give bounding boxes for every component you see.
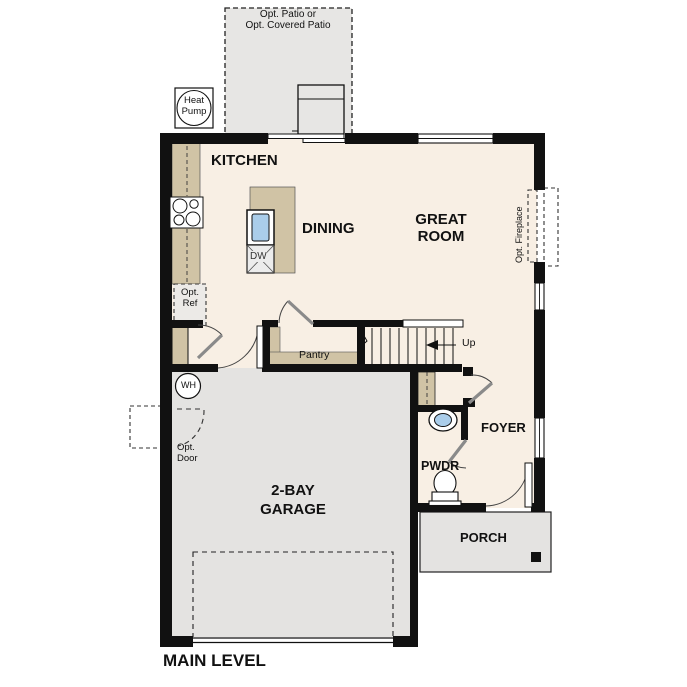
garage-door (193, 637, 393, 643)
garage-label: 2-BAY GARAGE (228, 482, 358, 520)
side-window-great-room (535, 283, 544, 310)
grill-appliance (292, 85, 344, 134)
kitchen-sink (247, 210, 274, 245)
dishwasher-label: DW (250, 251, 267, 262)
floor-plan: Opt. Patio or Opt. Covered Patio Heat Pu… (0, 0, 687, 687)
patio-label: Opt. Patio or Opt. Covered Patio (224, 9, 352, 31)
opt-door-label: Opt. Door (177, 443, 198, 464)
dining-label: DINING (302, 221, 355, 238)
kitchen-label: KITCHEN (211, 153, 278, 170)
foyer-label: FOYER (481, 421, 526, 436)
porch-label: PORCH (460, 531, 507, 546)
great-room-window (418, 134, 493, 143)
main-level-title: MAIN LEVEL (163, 651, 266, 670)
up-label: Up (462, 338, 475, 350)
floor-plan-drawing (0, 0, 687, 687)
pantry-label: Pantry (299, 350, 329, 362)
water-heater-label: WH (176, 380, 201, 390)
great-room-label: GREAT ROOM (397, 212, 485, 246)
understair-closet (418, 372, 435, 407)
powder-sink (429, 409, 457, 431)
porch-post (531, 552, 541, 562)
cooktop (170, 197, 203, 228)
powder-label: PWDR (421, 459, 459, 473)
optional-fireplace (528, 188, 558, 266)
opt-fireplace-label: Opt. Fireplace (514, 206, 524, 263)
opt-ref-label: Opt. Ref (174, 288, 206, 309)
side-window-foyer (535, 418, 544, 458)
heat-pump-label: Heat Pump (175, 96, 213, 117)
